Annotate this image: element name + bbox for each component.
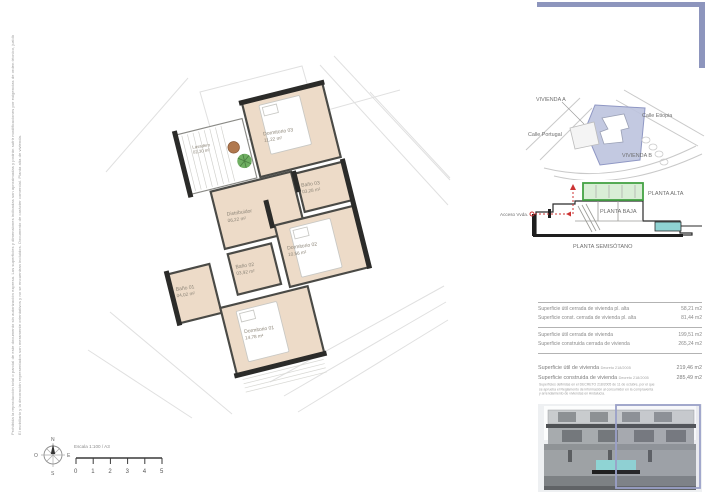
table-row: Superficie útil cerrada de vivienda 199,… — [538, 331, 702, 340]
surface-label: Superficie const. cerrada de vivienda pl… — [538, 314, 636, 323]
surface-value: 265,24 m2 — [678, 340, 702, 349]
location-map: VIVIENDA A Calle Etiopia Calle Portugal … — [524, 88, 705, 180]
surface-value: 81,44 m2 — [681, 314, 702, 323]
scale-tick-0: 0 — [74, 469, 78, 475]
totals-table: Superficie útil de vivienda Decreto 218/… — [538, 364, 702, 383]
left-margin-fine-print-2: El mobiliario y la decoración representa… — [17, 35, 25, 435]
scale-tick-3: 3 — [126, 469, 130, 475]
section-pool — [655, 222, 681, 231]
surface-label: Superficie construida cerrada de viviend… — [538, 340, 630, 349]
access-arrowhead-up-icon — [570, 184, 576, 190]
section-diagram: PLANTA ALTA PLANTA BAJA PLANTA SEMISÓTAN… — [478, 176, 705, 258]
label-planta-alta: PLANTA ALTA — [648, 191, 684, 197]
scale-tick-5: 5 — [160, 469, 164, 475]
scale-label: Escala 1:100 / A3 — [74, 444, 110, 449]
compass-o: O — [34, 453, 38, 459]
decree-reference: Decreto 218/2005 — [601, 366, 631, 370]
compass-s: S — [51, 471, 55, 476]
decree-reference: Decreto 218/2005 — [619, 376, 649, 380]
map-label-calle-portugal: Calle Portugal — [528, 132, 562, 138]
surface-value: 58,21 m2 — [681, 305, 702, 314]
table-rule-mid — [538, 327, 702, 328]
map-parking-spots — [642, 137, 668, 165]
surfaces-table-lower: Superficie útil cerrada de vivienda 199,… — [538, 331, 702, 348]
total-label-text: Superficie útil de vivienda — [538, 365, 599, 371]
scale-bar: 0 1 2 3 4 5 — [72, 452, 168, 476]
surface-label: Superficie útil cerrada de vivienda pl. … — [538, 305, 629, 314]
total-value: 219,46 m2 — [677, 364, 702, 374]
table-row: Superficie útil de vivienda Decreto 218/… — [538, 364, 702, 374]
floor-plan-drawing: Lavadero 02,30 m² Dormitorio 03 11,22 m²… — [70, 50, 460, 430]
map-label-vivienda-a: VIVIENDA A — [536, 97, 566, 103]
total-label-text: Superficie construida de vivienda — [538, 375, 617, 381]
table-row: Superficie const. cerrada de vivienda pl… — [538, 314, 702, 323]
render-highlight-frame — [616, 405, 700, 488]
compass-n: N — [51, 437, 55, 443]
surfaces-table-upper: Superficie útil cerrada de vivienda pl. … — [538, 305, 702, 322]
table-rule-bottom — [538, 353, 702, 354]
surface-label: Superficie útil cerrada de vivienda — [538, 331, 613, 340]
map-label-calle-etiopia: Calle Etiopia — [642, 113, 672, 119]
compass-needle-icon — [51, 444, 55, 454]
table-rule-top — [538, 302, 702, 303]
section-planta-alta-highlight — [583, 183, 643, 200]
building-render-image — [538, 404, 702, 492]
right-frame-bar — [699, 2, 705, 68]
scale-tick-4: 4 — [143, 469, 147, 475]
total-label: Superficie útil de vivienda Decreto 218/… — [538, 364, 631, 374]
total-label: Superficie construida de vivienda Decret… — [538, 374, 649, 384]
scale-tick-2: 2 — [108, 469, 112, 475]
surface-value: 199,51 m2 — [678, 331, 702, 340]
scale-tick-1: 1 — [91, 469, 95, 475]
table-row: Superficie construida de vivienda Decret… — [538, 374, 702, 384]
label-planta-baja: PLANTA BAJA — [600, 209, 637, 215]
table-row: Superficie útil cerrada de vivienda pl. … — [538, 305, 702, 314]
scale-ticks — [76, 458, 162, 464]
total-value: 285,49 m2 — [677, 374, 702, 384]
map-label-vivienda-b: VIVIENDA B — [622, 153, 652, 159]
compass-rose: N S O E — [34, 434, 72, 476]
table-row: Superficie construida cerrada de viviend… — [538, 340, 702, 349]
label-acceso-vivienda: Acceso Vvda. — [500, 212, 528, 217]
label-planta-semisotano: PLANTA SEMISÓTANO — [573, 243, 633, 250]
decree-note: Superficies definidas en el DECRETO 218/… — [539, 383, 655, 396]
compass-e: E — [67, 453, 71, 459]
top-frame-bar — [537, 2, 705, 7]
